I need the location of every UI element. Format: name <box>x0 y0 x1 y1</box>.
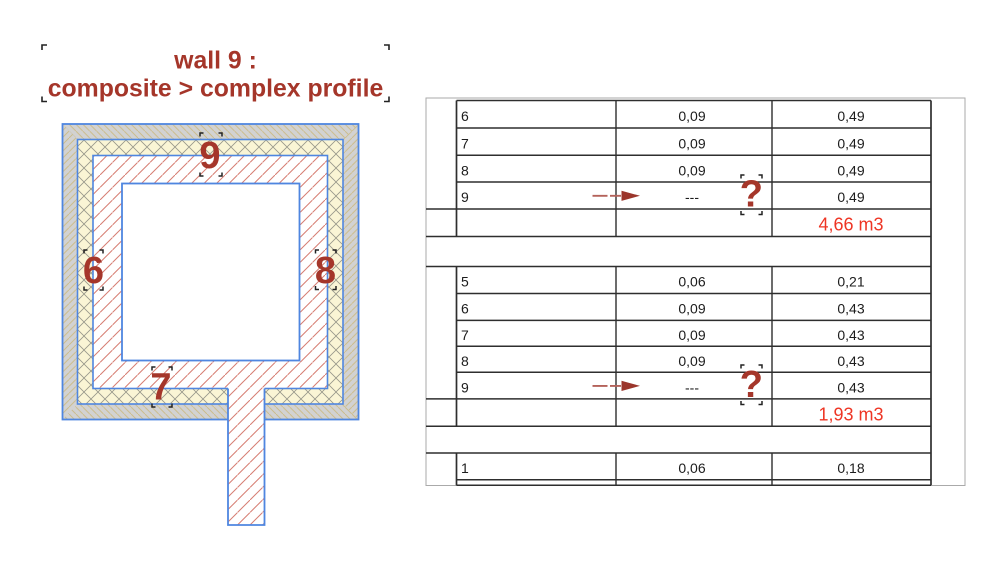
svg-text:0,49: 0,49 <box>837 189 864 205</box>
svg-text:---: --- <box>685 189 699 205</box>
svg-text:0,09: 0,09 <box>678 301 705 317</box>
svg-text:8: 8 <box>315 250 336 292</box>
svg-text:0,06: 0,06 <box>678 460 705 476</box>
svg-text:1: 1 <box>461 460 469 476</box>
svg-text:9: 9 <box>199 135 220 177</box>
svg-text:---: --- <box>685 379 699 395</box>
svg-text:0,21: 0,21 <box>837 274 864 290</box>
svg-text:7: 7 <box>461 135 469 151</box>
svg-text:0,49: 0,49 <box>837 108 864 124</box>
svg-text:1,93 m3: 1,93 m3 <box>818 404 883 424</box>
svg-text:0,06: 0,06 <box>678 274 705 290</box>
svg-text:0,49: 0,49 <box>837 162 864 178</box>
svg-text:wall 9 :: wall 9 : <box>173 48 257 75</box>
svg-text:8: 8 <box>461 353 469 369</box>
svg-text:0,18: 0,18 <box>837 460 864 476</box>
svg-text:7: 7 <box>461 327 469 343</box>
svg-text:6: 6 <box>83 250 104 292</box>
svg-text:7: 7 <box>150 367 171 409</box>
svg-text:composite > complex profile: composite > complex profile <box>48 76 384 103</box>
svg-text:9: 9 <box>461 189 469 205</box>
svg-text:8: 8 <box>461 162 469 178</box>
svg-text:0,43: 0,43 <box>837 301 864 317</box>
svg-text:0,43: 0,43 <box>837 327 864 343</box>
svg-text:0,49: 0,49 <box>837 135 864 151</box>
svg-text:4,66 m3: 4,66 m3 <box>818 215 883 235</box>
svg-text:6: 6 <box>461 301 469 317</box>
svg-text:0,09: 0,09 <box>678 327 705 343</box>
svg-text:0,09: 0,09 <box>678 135 705 151</box>
svg-text:0,09: 0,09 <box>678 353 705 369</box>
svg-text:?: ? <box>740 364 763 406</box>
svg-text:0,43: 0,43 <box>837 353 864 369</box>
svg-text:0,43: 0,43 <box>837 379 864 395</box>
svg-text:9: 9 <box>461 379 469 395</box>
svg-text:6: 6 <box>461 108 469 124</box>
svg-text:?: ? <box>740 174 763 216</box>
svg-text:0,09: 0,09 <box>678 108 705 124</box>
svg-text:5: 5 <box>461 274 469 290</box>
svg-text:0,09: 0,09 <box>678 162 705 178</box>
